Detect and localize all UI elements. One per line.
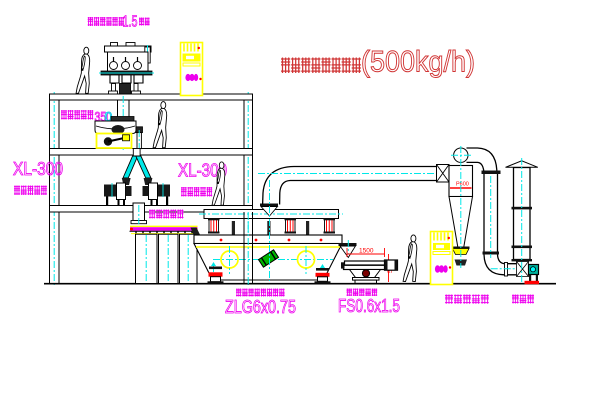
- svg-text:(500kg/h): (500kg/h): [361, 46, 475, 79]
- svg-text:XL-300: XL-300: [13, 159, 63, 179]
- svg-text:P600: P600: [456, 181, 469, 187]
- svg-text:ZLG6x0.75: ZLG6x0.75: [225, 297, 296, 317]
- svg-text:1.5: 1.5: [123, 14, 138, 31]
- svg-text:1500: 1500: [359, 248, 374, 255]
- svg-text:FS0.6x1.5: FS0.6x1.5: [338, 296, 400, 316]
